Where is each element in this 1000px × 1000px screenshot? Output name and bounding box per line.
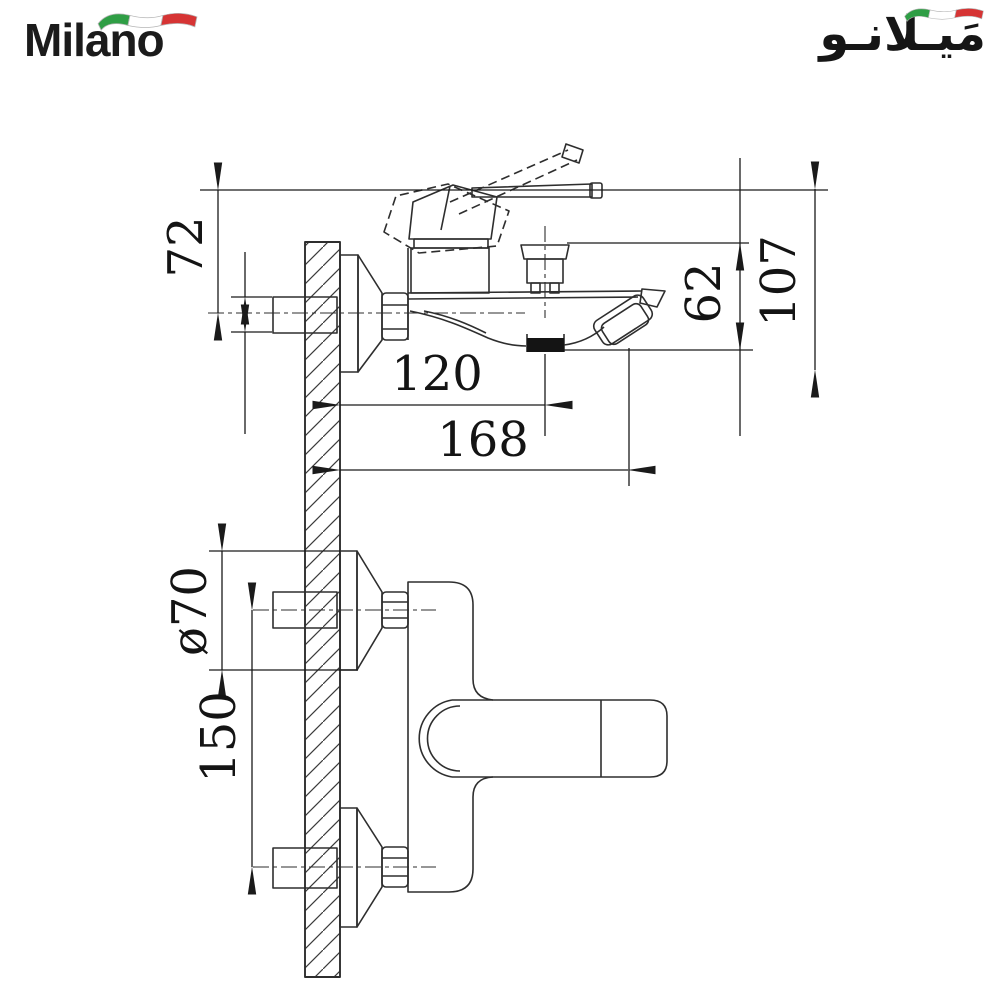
dim-overall-reach: 168 <box>340 348 629 486</box>
dim-pipe-offset <box>231 252 272 434</box>
dim-label-150: 150 <box>191 691 247 783</box>
technical-drawing: 72 107 62 120 <box>0 0 1000 1000</box>
dim-handle-height: 72 <box>158 190 218 313</box>
dim-label-120: 120 <box>391 346 483 402</box>
side-view <box>208 144 665 372</box>
hex-nut-upper <box>382 293 408 340</box>
lever-open-dashed <box>450 150 577 214</box>
page: Milano مَيـلانـو <box>0 0 1000 1000</box>
dim-label-dia70: ø70 <box>162 566 218 656</box>
dim-label-168: 168 <box>437 412 529 468</box>
spout <box>408 289 665 352</box>
handle-rear <box>601 700 667 777</box>
faucet-body-rear <box>408 582 667 892</box>
dim-overall-height: 107 <box>751 189 815 370</box>
mixer-handle <box>384 144 602 340</box>
aerator <box>527 338 564 352</box>
dim-label-107: 107 <box>751 235 807 327</box>
dim-label-62: 62 <box>676 262 732 323</box>
dimensions: 72 107 62 120 <box>158 158 828 867</box>
dim-label-72: 72 <box>158 216 214 277</box>
